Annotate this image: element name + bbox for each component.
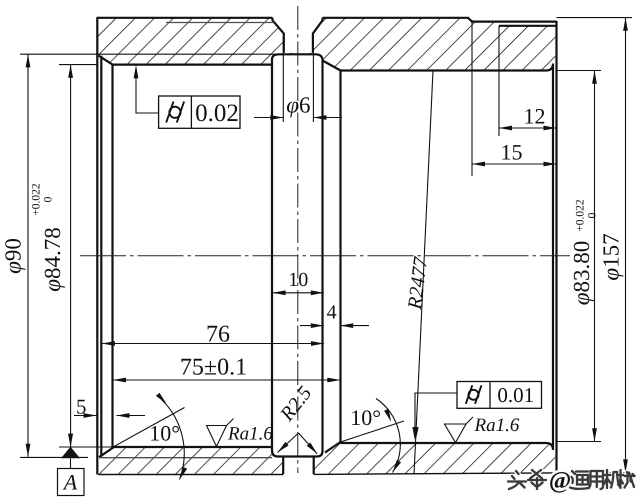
svg-text:+0.022: +0.022 xyxy=(575,199,587,232)
svg-text:10°: 10° xyxy=(149,420,180,445)
svg-text:0.02: 0.02 xyxy=(195,100,239,127)
svg-text:0: 0 xyxy=(587,212,599,218)
svg-text:φ90: φ90 xyxy=(1,238,26,274)
svg-text:12: 12 xyxy=(524,103,546,128)
svg-text:0.01: 0.01 xyxy=(497,383,534,407)
svg-text:75±0.1: 75±0.1 xyxy=(180,354,247,380)
svg-text:φ83.80: φ83.80 xyxy=(569,241,594,305)
svg-text:10: 10 xyxy=(288,269,308,291)
svg-text:15: 15 xyxy=(501,140,523,165)
svg-text:A: A xyxy=(62,470,78,495)
svg-text:10°: 10° xyxy=(350,405,381,430)
svg-text:76: 76 xyxy=(206,322,230,348)
svg-text:φ157: φ157 xyxy=(599,233,624,280)
svg-text:φ84.78: φ84.78 xyxy=(40,227,65,291)
svg-text:Ra1.6: Ra1.6 xyxy=(227,424,273,445)
svg-text:5: 5 xyxy=(76,395,87,419)
svg-text:4: 4 xyxy=(327,302,337,324)
svg-text:0: 0 xyxy=(43,196,55,202)
svg-text:+0.022: +0.022 xyxy=(31,183,43,216)
svg-text:@: @ xyxy=(549,468,571,494)
svg-text:φ6: φ6 xyxy=(286,92,310,117)
svg-text:Ra1.6: Ra1.6 xyxy=(474,415,520,436)
